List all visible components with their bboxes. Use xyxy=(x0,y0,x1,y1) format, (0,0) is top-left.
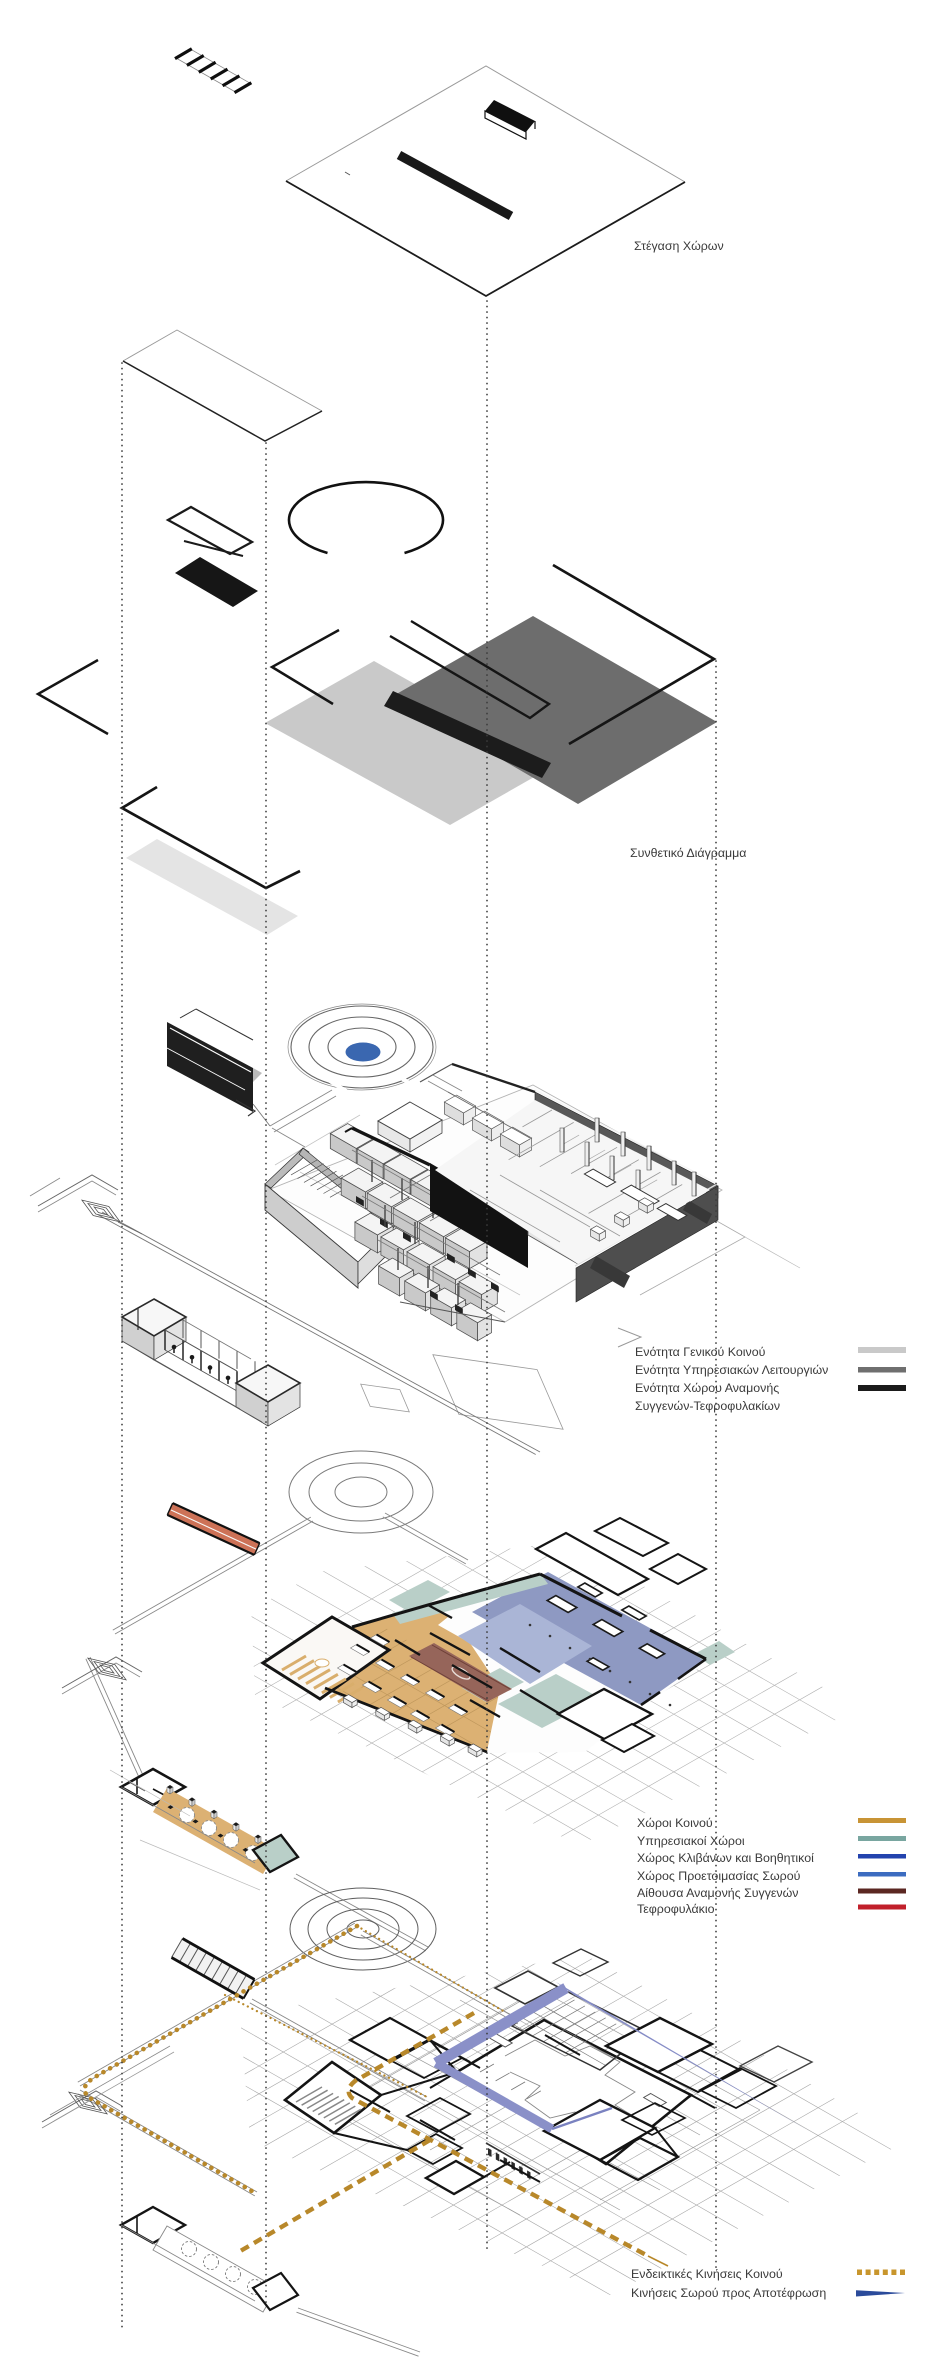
svg-text:Χώρος Προετοιμασίας Σωρού: Χώρος Προετοιμασίας Σωρού xyxy=(637,1869,801,1883)
svg-text:Υπηρεσιακοί Χώροι: Υπηρεσιακοί Χώροι xyxy=(637,1834,745,1848)
svg-text:Τεφροφυλάκιο: Τεφροφυλάκιο xyxy=(637,1902,715,1916)
svg-text:Ενότητα Χώρου Αναμονής: Ενότητα Χώρου Αναμονής xyxy=(635,1381,779,1395)
svg-text:Χώρος Κλιβάνων και Βοηθητικοί: Χώρος Κλιβάνων και Βοηθητικοί xyxy=(637,1851,814,1865)
svg-text:Κινήσεις Σωρού προς Αποτέφρωση: Κινήσεις Σωρού προς Αποτέφρωση xyxy=(631,2286,826,2300)
svg-text:Ενότητα Γενικού Κοινού: Ενότητα Γενικού Κοινού xyxy=(635,1345,766,1359)
svg-text:Ενότητα Υπηρεσιακών Λειτουργιώ: Ενότητα Υπηρεσιακών Λειτουργιών xyxy=(635,1363,828,1377)
svg-text:Αίθουσα Αναμονής Συγγενών: Αίθουσα Αναμονής Συγγενών xyxy=(637,1886,799,1900)
svg-text:Στέγαση Χώρων: Στέγαση Χώρων xyxy=(634,239,724,253)
svg-text:Ενδεικτικές Κινήσεις Κοινού: Ενδεικτικές Κινήσεις Κοινού xyxy=(631,2267,783,2281)
svg-text:Συνθετικό Διάγραμμα: Συνθετικό Διάγραμμα xyxy=(630,846,746,860)
svg-text:Συγγενών-Τεφροφυλακίων: Συγγενών-Τεφροφυλακίων xyxy=(635,1399,780,1413)
svg-text:Χώροι Κοινού: Χώροι Κοινού xyxy=(637,1816,713,1830)
